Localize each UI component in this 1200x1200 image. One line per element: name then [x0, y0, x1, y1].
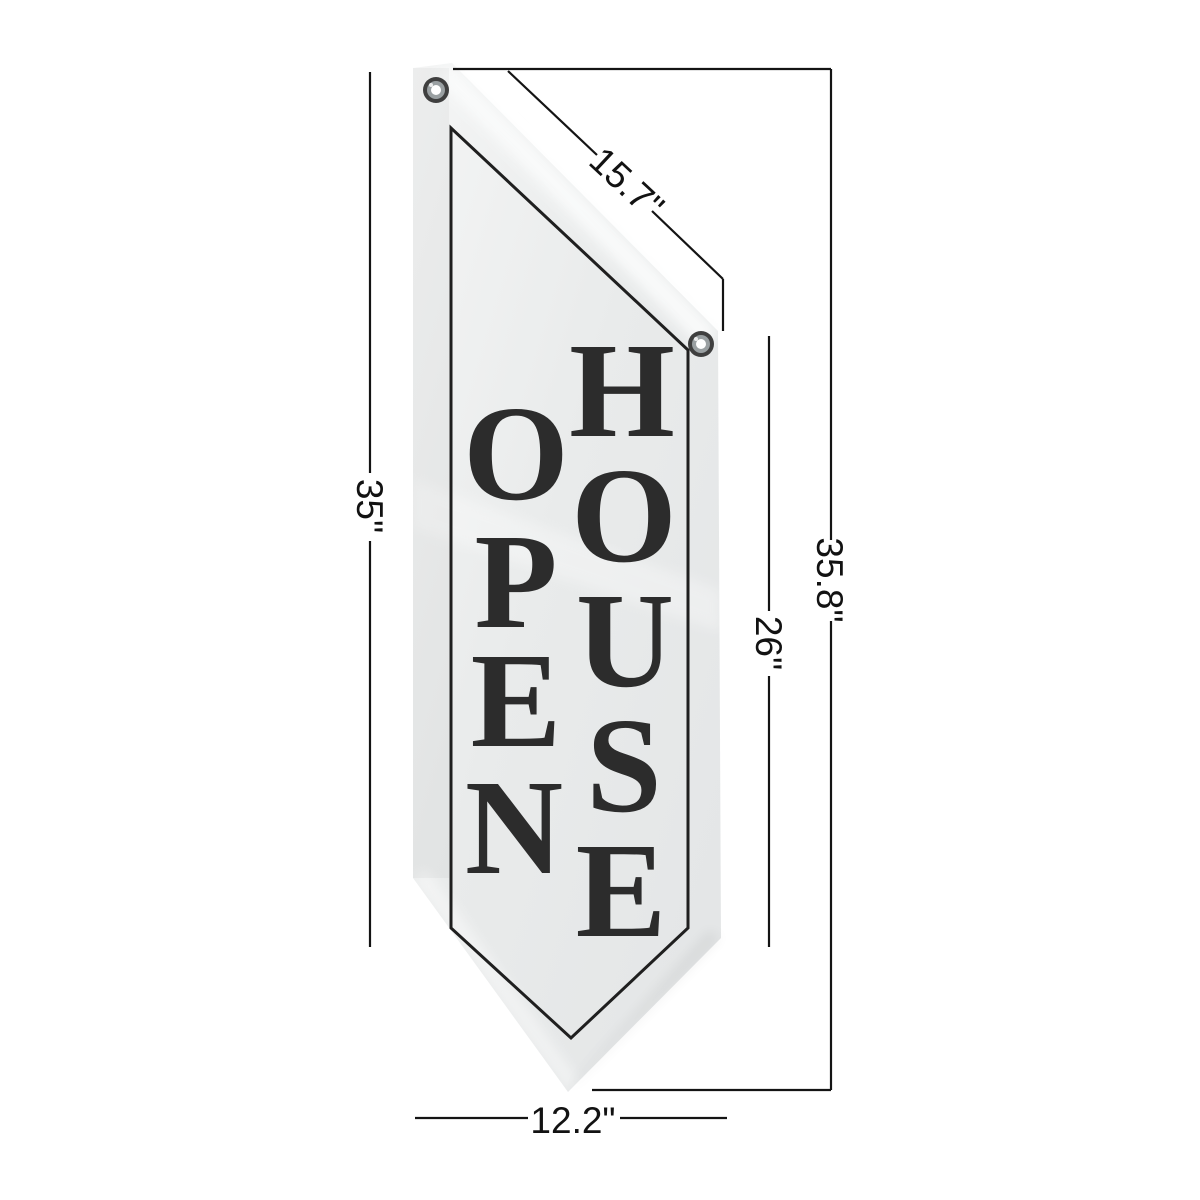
- fabric-left-shade: [413, 68, 449, 878]
- banner-letter-open-n: N: [465, 753, 563, 903]
- grommet-top-left: [423, 77, 449, 103]
- dim-label-left-height: 35": [349, 479, 390, 533]
- grommet-top-right: [688, 331, 714, 357]
- dim-label-bottom-width: 12.2": [530, 1100, 615, 1141]
- dim-label-right-straight-edge: 26": [748, 616, 789, 670]
- banner-letter-house-e: E: [576, 816, 667, 966]
- product-dimension-diagram: O P E N H O U S E: [0, 0, 1200, 1200]
- dim-label-overall-height: 35.8": [809, 537, 850, 622]
